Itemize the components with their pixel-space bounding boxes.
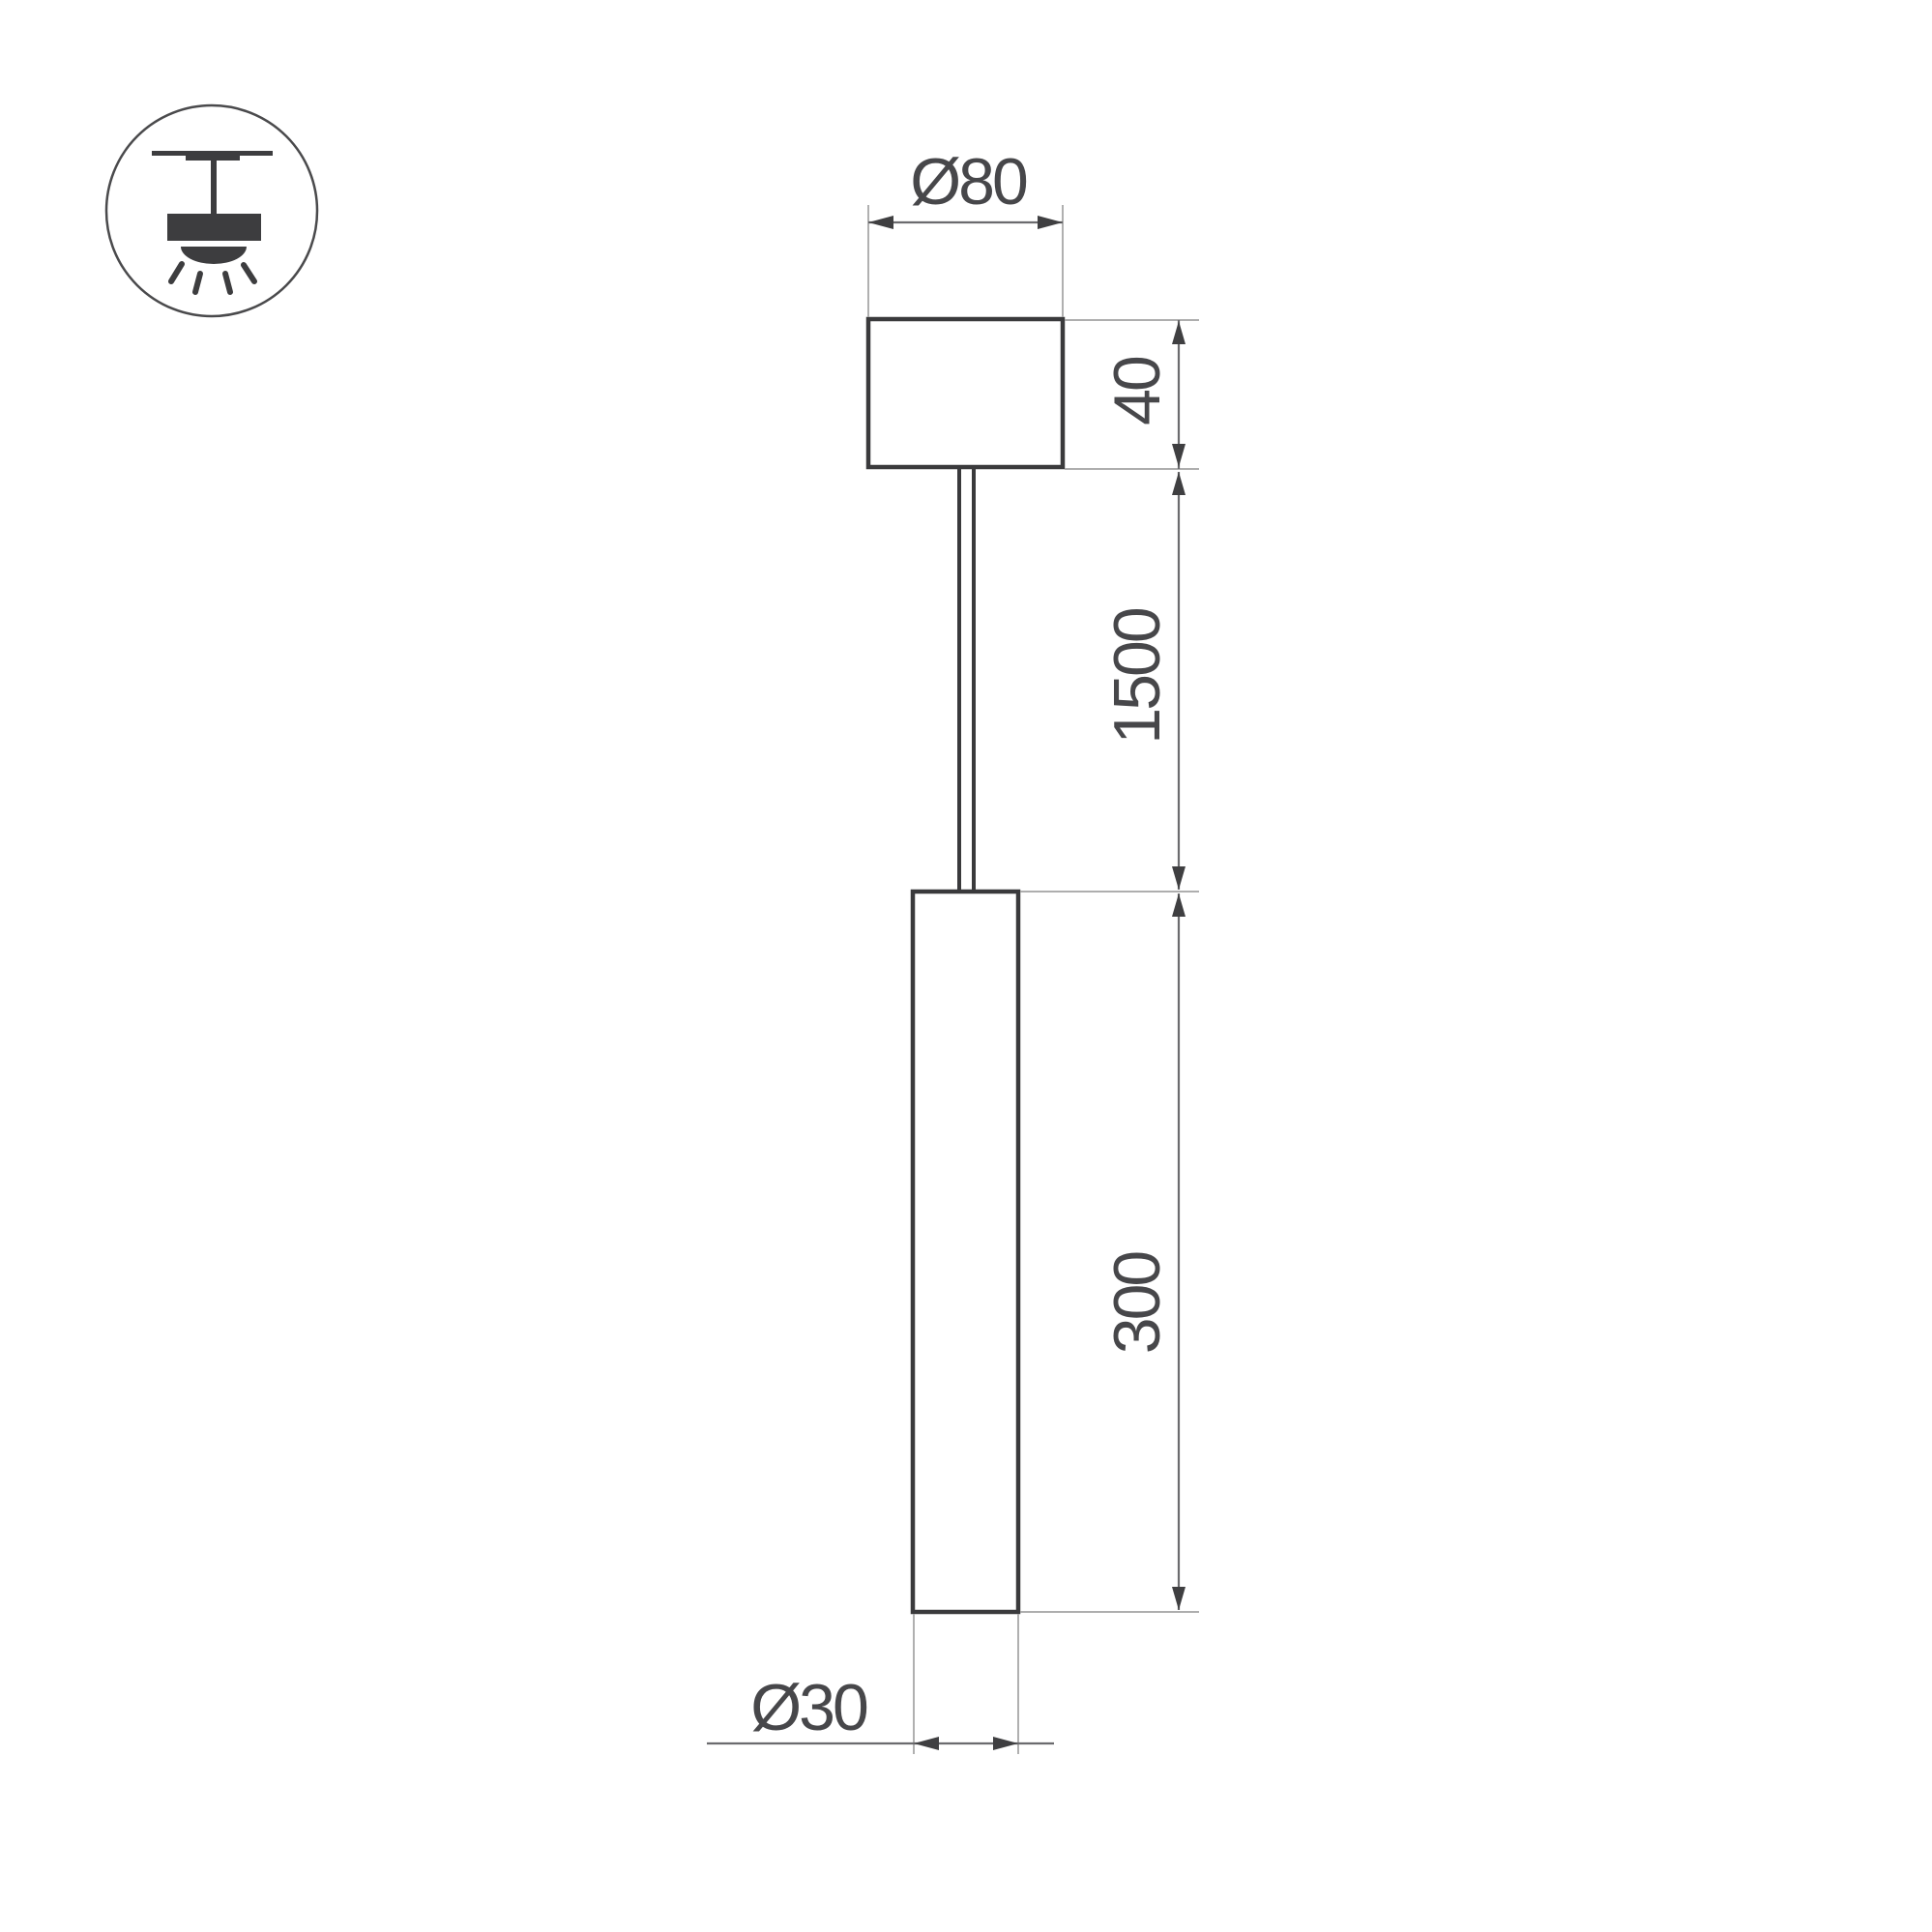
dim-canopy-height: 40	[1065, 320, 1199, 469]
arrowhead	[1172, 444, 1186, 467]
arrowhead	[914, 1737, 939, 1750]
tube-outline	[913, 892, 1018, 1612]
tube-length-label: 300	[1100, 1252, 1174, 1355]
dim-tube-diameter: Ø30	[707, 1614, 1054, 1754]
arrowhead	[1172, 321, 1186, 344]
suspension-length-label: 1500	[1100, 608, 1174, 744]
dim-suspension-length: 1500	[1100, 472, 1186, 890]
arrowhead	[1172, 1587, 1186, 1610]
canopy-diameter-label: Ø80	[910, 145, 1027, 219]
dim-tube-length: 300	[1020, 892, 1199, 1612]
arrowhead	[993, 1737, 1018, 1750]
arrowhead	[1038, 216, 1063, 229]
arrowhead	[1172, 472, 1186, 495]
dimension-drawing-canvas: Ø80 40 1500 300	[0, 0, 1932, 1932]
suspended-ceiling-mount-icon	[106, 105, 317, 316]
dim-canopy-diameter: Ø80	[868, 145, 1063, 317]
tube-diameter-label: Ø30	[750, 1671, 867, 1744]
canopy-outline	[868, 319, 1063, 467]
luminaire-outline	[868, 319, 1063, 1612]
arrowhead	[1172, 893, 1186, 917]
pendant-rod	[211, 159, 217, 216]
suspension-cable	[959, 469, 974, 892]
dimension-drawing: Ø80 40 1500 300	[0, 0, 1932, 1932]
lamp-body	[167, 214, 261, 241]
arrowhead	[1172, 866, 1186, 890]
arrowhead	[868, 216, 893, 229]
canopy-height-label: 40	[1100, 357, 1174, 425]
